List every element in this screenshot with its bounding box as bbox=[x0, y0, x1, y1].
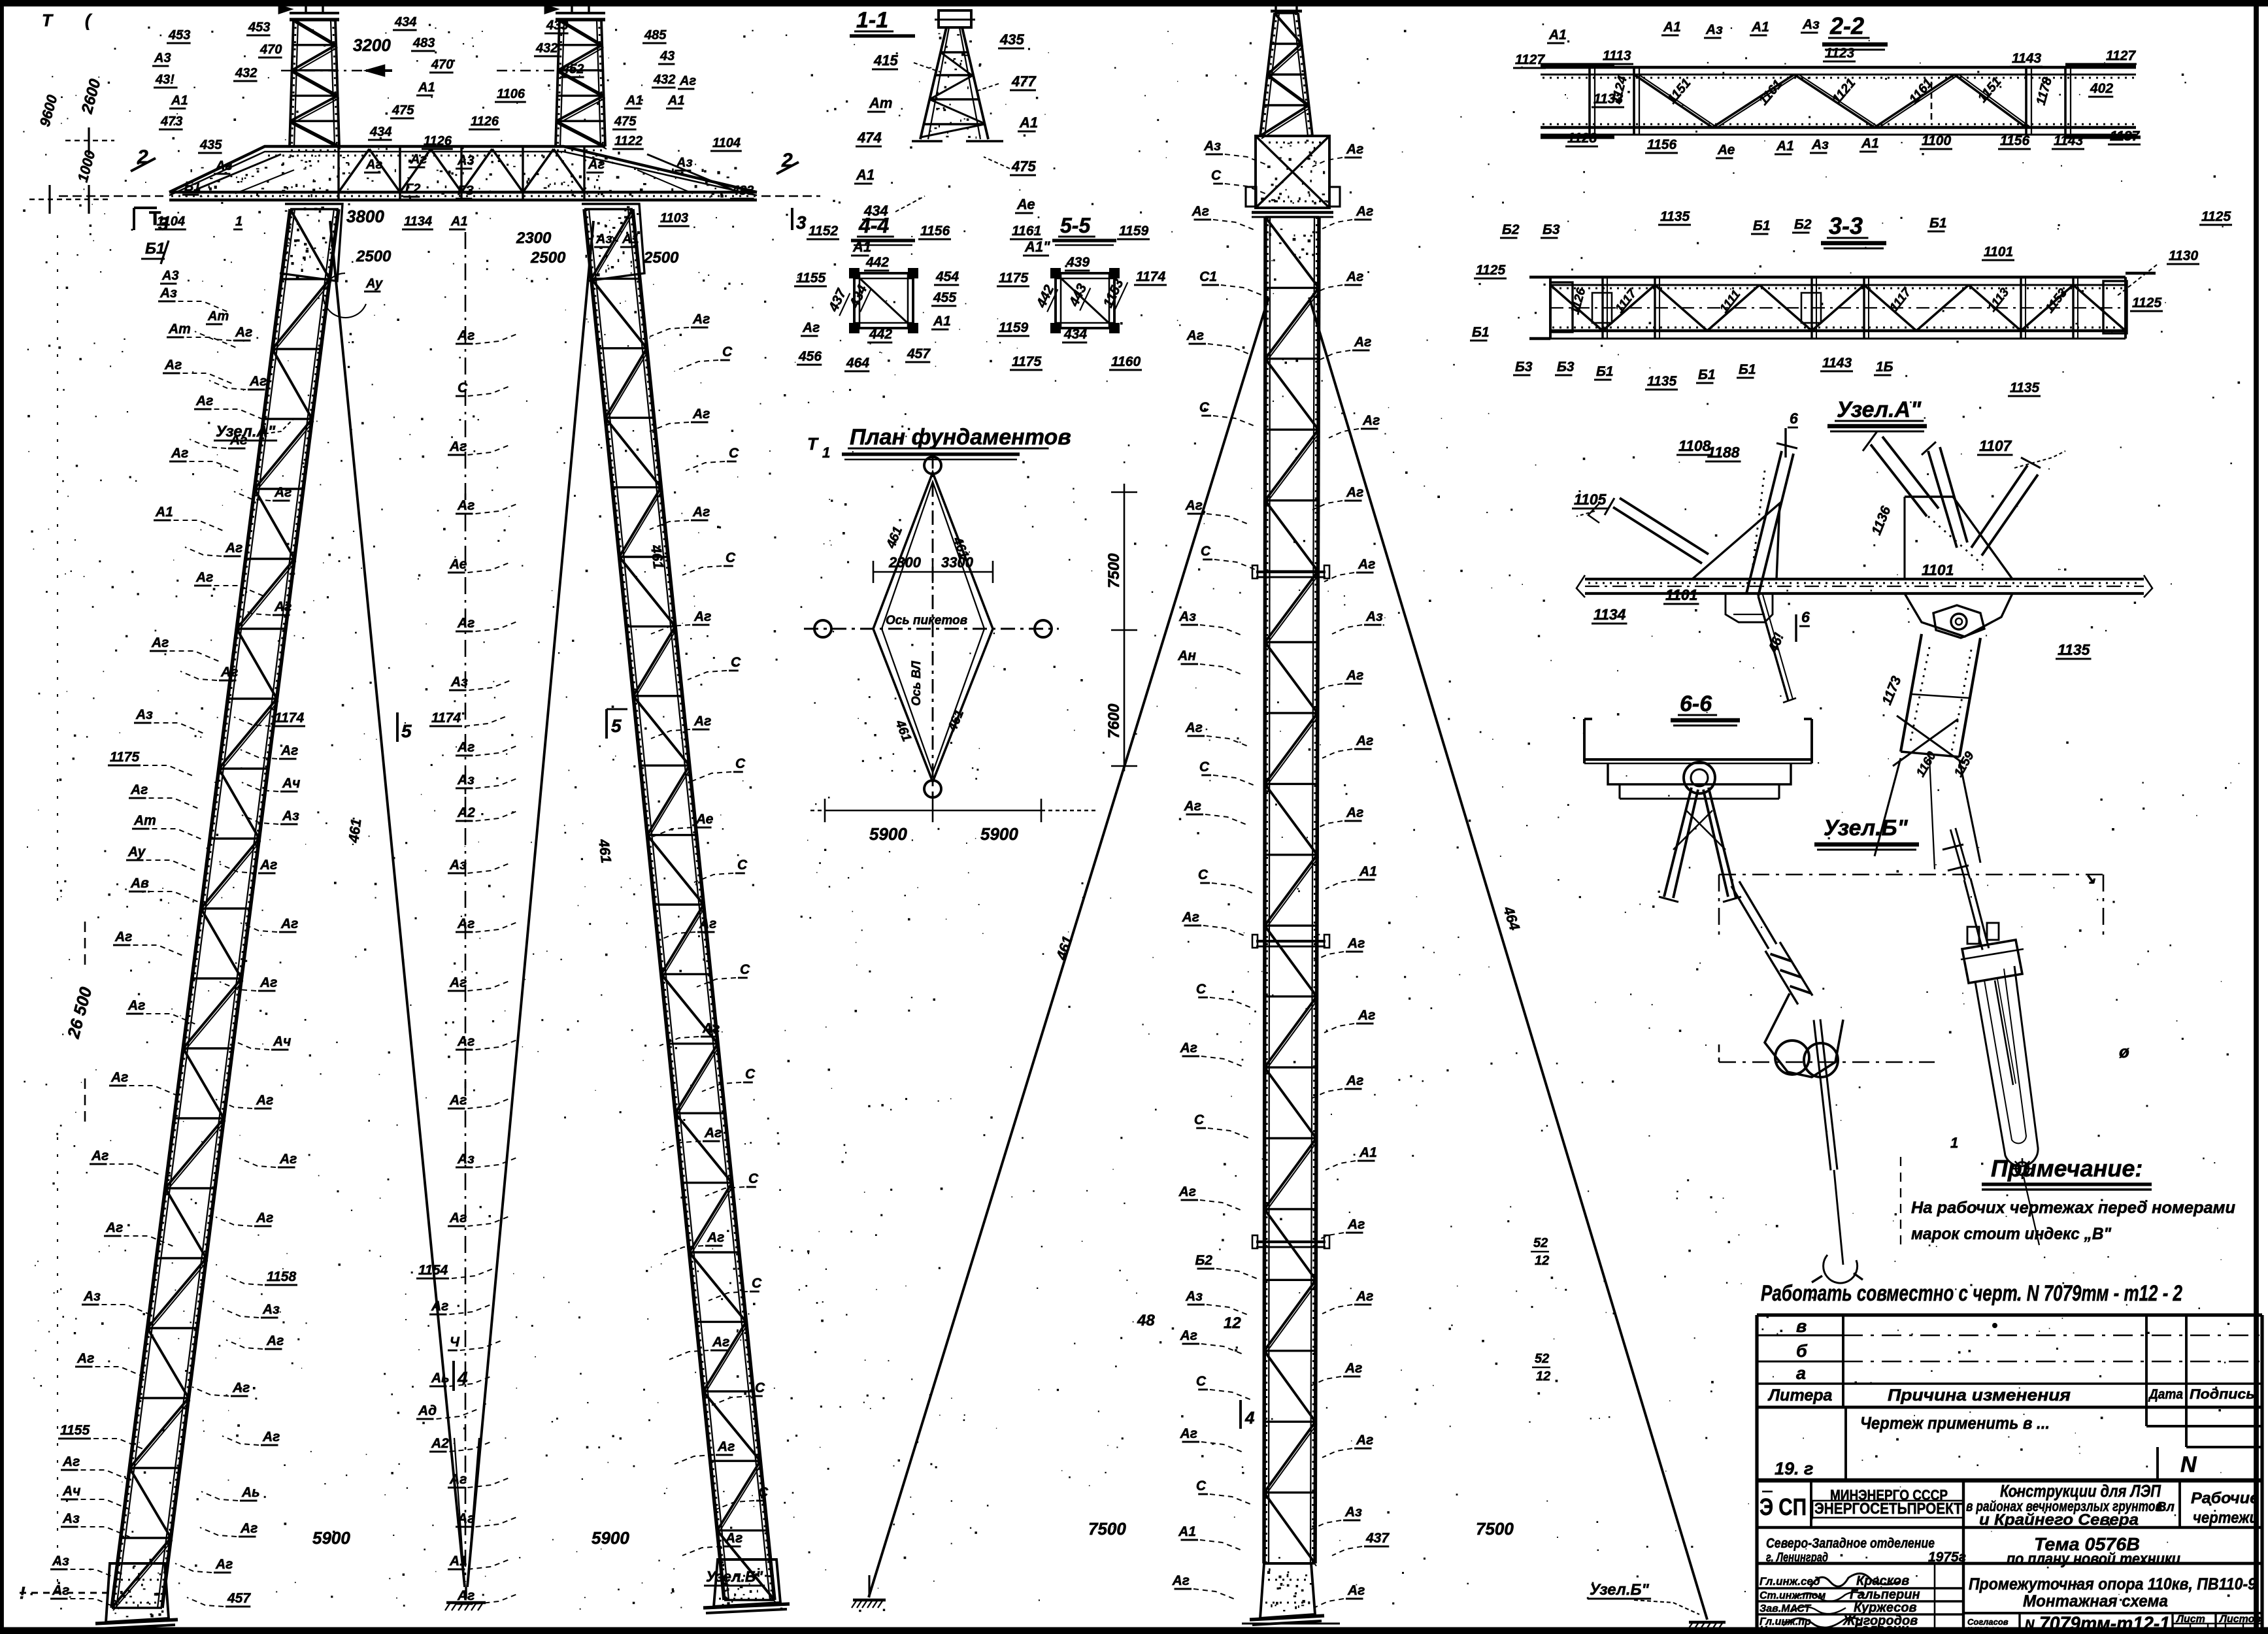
svg-text:7500: 7500 bbox=[1105, 553, 1123, 588]
svg-text:1174: 1174 bbox=[1136, 269, 1165, 284]
svg-text:Аг: Аг bbox=[1180, 1328, 1197, 1343]
svg-text:Примечание:: Примечание: bbox=[1991, 1155, 2143, 1182]
svg-text:Аг: Аг bbox=[1356, 1433, 1373, 1448]
svg-text:1108: 1108 bbox=[1678, 437, 1711, 454]
svg-text:План фундаментов: План фундаментов bbox=[850, 425, 1071, 450]
svg-text:Аг: Аг bbox=[702, 1021, 720, 1036]
svg-text:Аг: Аг bbox=[114, 929, 132, 944]
svg-text:Аг: Аг bbox=[259, 858, 277, 873]
svg-text:1103: 1103 bbox=[660, 211, 688, 225]
svg-text:б: б bbox=[1796, 1341, 1808, 1361]
svg-text:475: 475 bbox=[1011, 158, 1036, 175]
svg-text:1101: 1101 bbox=[1922, 561, 1954, 578]
svg-text:435: 435 bbox=[199, 138, 222, 152]
svg-text:1104: 1104 bbox=[712, 136, 741, 150]
svg-text:43: 43 bbox=[659, 49, 675, 63]
svg-text:7500: 7500 bbox=[1088, 1519, 1126, 1539]
svg-text:Аь: Аь bbox=[431, 1371, 450, 1386]
svg-text:434: 434 bbox=[1063, 327, 1087, 342]
svg-text:Аг: Аг bbox=[693, 609, 711, 624]
svg-text:Ось ВЛ: Ось ВЛ bbox=[910, 660, 924, 706]
svg-text:Аз: Аз bbox=[595, 232, 612, 246]
svg-text:Б1: Б1 bbox=[184, 180, 201, 194]
svg-text:Куржесов: Куржесов bbox=[1854, 1601, 1917, 1615]
svg-text:Аг: Аг bbox=[274, 599, 292, 614]
svg-text:Аг: Аг bbox=[274, 485, 292, 500]
svg-text:Аг: Аг bbox=[220, 665, 238, 680]
svg-text:А1: А1 bbox=[1776, 139, 1794, 154]
svg-text:Зав.МАСТ: Зав.МАСТ bbox=[1759, 1603, 1811, 1614]
svg-text:1143: 1143 bbox=[2012, 51, 2041, 66]
svg-text:1100: 1100 bbox=[1922, 133, 1951, 148]
svg-text:!: ! bbox=[20, 1583, 25, 1603]
svg-text:С: С bbox=[1196, 982, 1207, 997]
svg-text:432: 432 bbox=[535, 41, 558, 56]
svg-text:Ат: Ат bbox=[207, 309, 229, 324]
svg-text:Ае: Ае bbox=[1016, 196, 1035, 212]
svg-text:Аг: Аг bbox=[1346, 269, 1363, 284]
svg-text:1127: 1127 bbox=[1515, 52, 1545, 67]
svg-text:Аг: Аг bbox=[280, 916, 298, 931]
svg-text:А1: А1 bbox=[1751, 20, 1769, 35]
svg-text:Аг: Аг bbox=[62, 1454, 80, 1469]
svg-text:На рабочих чертежах перед: На рабочих чертежах перед номерами bbox=[1911, 1199, 2235, 1217]
svg-text:А1": А1" bbox=[1024, 239, 1050, 255]
svg-text:1106: 1106 bbox=[497, 87, 525, 101]
svg-text:5900: 5900 bbox=[869, 824, 907, 844]
svg-text:5900: 5900 bbox=[312, 1528, 350, 1548]
svg-text:Аг: Аг bbox=[1358, 1008, 1375, 1023]
svg-text:А1: А1 bbox=[667, 93, 685, 108]
svg-text:С: С bbox=[748, 1171, 759, 1186]
svg-text:5-5: 5-5 bbox=[1060, 214, 1091, 237]
svg-text:Аг: Аг bbox=[279, 1152, 297, 1167]
svg-text:Красков: Красков bbox=[1856, 1574, 1909, 1588]
svg-text:А3: А3 bbox=[161, 269, 179, 283]
svg-text:С: С bbox=[1196, 1478, 1207, 1493]
svg-text:1130: 1130 bbox=[2169, 248, 2198, 263]
svg-text:1160: 1160 bbox=[1111, 354, 1141, 369]
svg-text:Узел.А": Узел.А" bbox=[1837, 397, 1922, 422]
svg-text:Ач: Ач bbox=[273, 1034, 291, 1049]
svg-text:Аз: Аз bbox=[449, 858, 467, 873]
svg-text:Гальперин: Гальперин bbox=[1850, 1588, 1920, 1602]
svg-text:52: 52 bbox=[1533, 1236, 1548, 1250]
svg-text:Аг: Аг bbox=[171, 446, 188, 461]
svg-text:1127: 1127 bbox=[2106, 48, 2136, 63]
svg-text:1122: 1122 bbox=[614, 134, 642, 148]
svg-text:Ач: Ач bbox=[282, 776, 300, 791]
svg-text:Узел.Б": Узел.Б" bbox=[706, 1568, 763, 1585]
svg-text:461: 461 bbox=[345, 818, 364, 844]
svg-text:Аз: Аз bbox=[262, 1302, 280, 1317]
svg-text:1126: 1126 bbox=[424, 134, 452, 148]
svg-text:Аг: Аг bbox=[457, 498, 475, 513]
svg-text:Н.контр: Н.контр bbox=[1759, 1625, 1804, 1634]
svg-text:Аг: Аг bbox=[259, 975, 277, 990]
svg-text:Аг: Аг bbox=[1346, 485, 1363, 500]
svg-text:Аг: Аг bbox=[235, 325, 252, 340]
svg-text:Аг: Аг bbox=[1344, 1361, 1362, 1376]
svg-text:12: 12 bbox=[1535, 1254, 1549, 1268]
svg-text:5900: 5900 bbox=[592, 1528, 629, 1548]
svg-text:402: 402 bbox=[2090, 81, 2113, 96]
svg-text:Б1: Б1 bbox=[145, 240, 165, 258]
svg-text:Б1: Б1 bbox=[1739, 362, 1756, 377]
svg-text:457: 457 bbox=[227, 1591, 251, 1606]
svg-text:1155: 1155 bbox=[796, 271, 825, 286]
svg-text:Б3: Б3 bbox=[1557, 359, 1575, 375]
svg-text:1-1: 1-1 bbox=[856, 8, 888, 33]
svg-text:432: 432 bbox=[653, 73, 675, 87]
svg-text:12: 12 bbox=[1536, 1369, 1550, 1384]
svg-text:А1: А1 bbox=[418, 80, 435, 95]
svg-text:3-3: 3-3 bbox=[1829, 212, 1863, 239]
svg-text:N: N bbox=[2180, 1452, 2197, 1477]
svg-text:С: С bbox=[755, 1380, 765, 1395]
svg-text:Аг: Аг bbox=[1347, 1217, 1365, 1232]
svg-text:470: 470 bbox=[259, 42, 282, 57]
svg-text:А1: А1 bbox=[449, 1554, 467, 1569]
svg-text:Аг: Аг bbox=[704, 1125, 722, 1141]
svg-text:А3: А3 bbox=[154, 51, 171, 65]
svg-text:Аз: Аз bbox=[159, 286, 177, 301]
svg-text:Аг: Аг bbox=[105, 1220, 123, 1235]
svg-text:А3: А3 bbox=[457, 154, 475, 168]
svg-text:1156: 1156 bbox=[1647, 137, 1676, 152]
svg-text:415: 415 bbox=[873, 52, 898, 69]
svg-text:Аг: Аг bbox=[1346, 805, 1363, 820]
svg-text:Аз: Аз bbox=[1185, 1289, 1203, 1304]
svg-text:Б1: Б1 bbox=[1596, 364, 1614, 379]
svg-text:Аз: Аз bbox=[1802, 17, 1820, 32]
svg-text:473: 473 bbox=[160, 114, 182, 129]
svg-text:Ав: Ав bbox=[130, 876, 149, 891]
svg-text:Аг: Аг bbox=[457, 616, 475, 631]
svg-text:483: 483 bbox=[412, 36, 435, 50]
svg-text:А1: А1 bbox=[625, 93, 643, 108]
svg-text:А1: А1 bbox=[856, 167, 875, 183]
svg-text:Б1: Б1 bbox=[1929, 216, 1947, 231]
svg-text:1143: 1143 bbox=[1822, 356, 1852, 371]
svg-text:Аг: Аг bbox=[280, 743, 298, 758]
svg-text:Узел.Б": Узел.Б" bbox=[1824, 816, 1909, 841]
svg-text:Аз: Аз bbox=[62, 1511, 80, 1526]
svg-text:3200: 3200 bbox=[353, 35, 391, 55]
svg-text:Аз: Аз bbox=[1178, 609, 1196, 624]
svg-text:Аг: Аг bbox=[449, 439, 467, 454]
svg-text:4: 4 bbox=[1244, 1408, 1255, 1427]
svg-text:1175: 1175 bbox=[110, 750, 139, 765]
svg-text:1188: 1188 bbox=[1707, 444, 1740, 461]
svg-text:А1: А1 bbox=[155, 505, 173, 520]
svg-text:461: 461 bbox=[595, 838, 614, 864]
svg-text:1156: 1156 bbox=[920, 224, 950, 239]
svg-text:А1: А1 bbox=[171, 93, 188, 108]
svg-text:Аг: Аг bbox=[1358, 557, 1375, 572]
svg-text:Аг: Аг bbox=[225, 541, 242, 556]
svg-text:а: а bbox=[1796, 1363, 1806, 1383]
svg-text:Аг: Аг bbox=[240, 1521, 258, 1536]
svg-text:Аг: Аг bbox=[1346, 142, 1363, 157]
svg-text:457: 457 bbox=[907, 346, 931, 361]
svg-text:С: С bbox=[1201, 544, 1211, 559]
svg-text:Аг: Аг bbox=[692, 505, 710, 520]
svg-text:1135: 1135 bbox=[1660, 209, 1690, 224]
svg-text:461: 461 bbox=[648, 544, 667, 570]
svg-text:1Б: 1Б bbox=[1876, 359, 1893, 375]
svg-text:3: 3 bbox=[796, 212, 807, 233]
svg-text:1155: 1155 bbox=[60, 1423, 90, 1438]
svg-text:Аг: Аг bbox=[707, 1230, 724, 1245]
svg-text:Монтажная схема: Монтажная схема bbox=[2023, 1592, 2168, 1610]
svg-text:7079тм-т12-1: 7079тм-т12-1 bbox=[2039, 1613, 2170, 1634]
svg-text:433: 433 bbox=[546, 18, 568, 33]
svg-text:Аг: Аг bbox=[449, 1472, 467, 1487]
svg-text:6: 6 bbox=[1801, 609, 1810, 625]
svg-text:1975г: 1975г bbox=[1928, 1550, 1966, 1565]
svg-text:Ач: Ач bbox=[62, 1484, 80, 1499]
svg-text:4-4: 4-4 bbox=[858, 214, 889, 237]
svg-text:ГЗ: ГЗ bbox=[458, 184, 474, 198]
svg-text:Аг: Аг bbox=[449, 1093, 467, 1108]
svg-text:48: 48 bbox=[1137, 1312, 1155, 1329]
svg-text:474: 474 bbox=[857, 129, 882, 146]
svg-text:С: С bbox=[735, 756, 746, 771]
svg-text:Аг: Аг bbox=[249, 374, 267, 389]
svg-text:Б1: Б1 bbox=[1753, 218, 1771, 233]
svg-text:Аг: Аг bbox=[457, 328, 475, 343]
svg-text:Аг: Аг bbox=[215, 159, 232, 173]
svg-text:Аз: Аз bbox=[282, 809, 299, 824]
svg-text:432: 432 bbox=[235, 66, 257, 80]
svg-text:Аг: Аг bbox=[127, 998, 145, 1013]
svg-text:и кол-во: и кол-во bbox=[1967, 1624, 2000, 1633]
svg-text:1158: 1158 bbox=[267, 1269, 296, 1284]
svg-text:Ат: Ат bbox=[168, 322, 191, 337]
svg-text:Аг: Аг bbox=[692, 312, 710, 327]
svg-text:2300: 2300 bbox=[888, 554, 922, 571]
svg-text:1126: 1126 bbox=[471, 114, 499, 129]
svg-text:Аг: Аг bbox=[457, 740, 475, 755]
svg-text:Чертеж применить в ...: Чертеж применить в ... bbox=[1860, 1413, 2050, 1433]
svg-text:С: С bbox=[1211, 168, 1222, 183]
svg-text:1135: 1135 bbox=[2058, 641, 2091, 658]
svg-text:442: 442 bbox=[869, 327, 892, 342]
svg-text:Т: Т bbox=[807, 434, 819, 454]
svg-text:Головин: Головин bbox=[1854, 1622, 1909, 1634]
svg-text:1128: 1128 bbox=[1567, 131, 1597, 146]
svg-text:Аг: Аг bbox=[699, 916, 716, 931]
svg-text:С: С bbox=[1194, 1112, 1205, 1127]
svg-text:С: С bbox=[1198, 867, 1209, 882]
svg-text:470: 470 bbox=[431, 58, 453, 72]
svg-text:1113: 1113 bbox=[1603, 48, 1631, 63]
svg-text:Аг: Аг bbox=[712, 1335, 729, 1350]
svg-text:Аг: Аг bbox=[457, 916, 475, 931]
svg-text:Аг: Аг bbox=[725, 1531, 742, 1546]
svg-text:Аг: Аг bbox=[91, 1148, 108, 1163]
svg-text:N: N bbox=[2025, 1618, 2035, 1632]
svg-text:А1: А1 bbox=[622, 232, 639, 246]
svg-text:Аг: Аг bbox=[1347, 936, 1365, 951]
svg-text:А1: А1 bbox=[1861, 136, 1879, 151]
svg-text:Аз: Аз bbox=[135, 707, 153, 722]
svg-text:С: С bbox=[731, 655, 741, 670]
svg-text:1159: 1159 bbox=[1119, 224, 1148, 239]
svg-text:453: 453 bbox=[168, 28, 190, 42]
svg-text:Аг: Аг bbox=[151, 635, 169, 650]
svg-text:6: 6 bbox=[1790, 410, 1798, 427]
svg-text:Г2: Г2 bbox=[405, 182, 420, 196]
svg-text:Б1: Б1 bbox=[1472, 325, 1490, 340]
svg-text:5900: 5900 bbox=[980, 824, 1018, 844]
svg-text:52: 52 bbox=[1535, 1352, 1549, 1366]
svg-text:4: 4 bbox=[457, 1368, 468, 1388]
svg-text:Аз: Аз bbox=[450, 675, 468, 690]
svg-text:475: 475 bbox=[614, 114, 637, 129]
svg-text:1187: 1187 bbox=[2110, 129, 2140, 144]
svg-text:Аг: Аг bbox=[1346, 668, 1363, 683]
svg-text:453: 453 bbox=[248, 20, 270, 35]
svg-text:Ад: Ад bbox=[418, 1403, 437, 1418]
svg-text:Аг: Аг bbox=[164, 358, 182, 373]
svg-text:2500: 2500 bbox=[356, 248, 392, 265]
svg-text:Аг: Аг bbox=[1186, 328, 1204, 343]
svg-text:Аг: Аг bbox=[802, 320, 820, 335]
svg-text:Аг: Аг bbox=[1356, 204, 1373, 219]
svg-text:Аг: Аг bbox=[457, 1588, 475, 1603]
svg-text:1174: 1174 bbox=[275, 710, 304, 725]
svg-text:Аг: Аг bbox=[1185, 720, 1203, 735]
svg-text:г. Ленинград: г. Ленинград bbox=[1766, 1551, 1828, 1565]
svg-text:А1: А1 bbox=[1019, 114, 1038, 131]
svg-text:Аз: Аз bbox=[1203, 139, 1221, 154]
svg-text:483: 483 bbox=[731, 184, 754, 198]
svg-text:19. г: 19. г bbox=[1775, 1459, 1813, 1478]
svg-text:Дата: Дата bbox=[2148, 1387, 2183, 1402]
svg-text:Узел.А": Узел.А" bbox=[216, 423, 276, 441]
svg-text:С: С bbox=[737, 858, 748, 873]
svg-text:Рабочие: Рабочие bbox=[2191, 1490, 2259, 1507]
svg-text:1174: 1174 bbox=[431, 710, 461, 725]
svg-text:Аг: Аг bbox=[130, 782, 148, 797]
svg-text:1175: 1175 bbox=[999, 271, 1028, 286]
svg-text:1143: 1143 bbox=[2054, 133, 2083, 148]
svg-text:437: 437 bbox=[1365, 1531, 1390, 1546]
svg-text:456: 456 bbox=[798, 349, 822, 364]
svg-text:1175: 1175 bbox=[1012, 354, 1041, 369]
svg-text:Ае: Ае bbox=[1717, 142, 1735, 158]
svg-text:С: С bbox=[745, 1067, 756, 1082]
svg-text:С: С bbox=[758, 1485, 769, 1500]
svg-text:1123: 1123 bbox=[1825, 46, 1854, 61]
svg-text:Аз: Аз bbox=[1344, 1505, 1362, 1520]
svg-text:Аз: Аз bbox=[83, 1289, 101, 1304]
svg-text:А1: А1 bbox=[1359, 1145, 1377, 1160]
svg-text:Аг: Аг bbox=[262, 1429, 280, 1444]
svg-text:Ау: Ау bbox=[365, 276, 383, 291]
svg-text:Аз: Аз bbox=[1365, 609, 1383, 624]
svg-text:Э СП: Э СП bbox=[1759, 1493, 1807, 1520]
svg-text:Ат: Ат bbox=[133, 813, 156, 828]
svg-text:1: 1 bbox=[235, 214, 242, 229]
svg-text:Аг: Аг bbox=[679, 74, 696, 88]
svg-text:Аг: Аг bbox=[1354, 335, 1371, 350]
svg-text:Северо-Западное отделение: Северо-Западное отделение bbox=[1766, 1536, 1935, 1551]
svg-text:Аг: Аг bbox=[76, 1351, 94, 1366]
svg-text:С: С bbox=[1199, 759, 1210, 775]
svg-text:Ч: Ч bbox=[450, 1335, 460, 1350]
svg-text:434: 434 bbox=[369, 125, 392, 139]
svg-text:Аг: Аг bbox=[457, 1511, 475, 1526]
svg-text:455: 455 bbox=[933, 290, 956, 305]
svg-text:7500: 7500 bbox=[1476, 1519, 1514, 1539]
svg-text:Аг: Аг bbox=[1356, 1289, 1373, 1304]
svg-text:1107: 1107 bbox=[1979, 437, 2012, 454]
svg-text:Аз: Аз bbox=[457, 1152, 475, 1167]
svg-text:2-2: 2-2 bbox=[1829, 12, 1864, 39]
svg-text:Аг: Аг bbox=[1362, 413, 1380, 428]
svg-text:Аг: Аг bbox=[449, 975, 467, 990]
svg-text:7600: 7600 bbox=[1105, 703, 1123, 739]
svg-text:С: С bbox=[729, 446, 739, 461]
svg-text:1: 1 bbox=[1950, 1135, 1958, 1151]
svg-text:Промежуточная опора 110кв, ПВ: Промежуточная опора 110кв, ПВ110-9 bbox=[1969, 1575, 2256, 1593]
svg-text:А1: А1 bbox=[450, 214, 468, 229]
svg-text:А1: А1 bbox=[933, 314, 951, 329]
svg-text:Аг: Аг bbox=[717, 1439, 735, 1454]
svg-text:1: 1 bbox=[822, 444, 830, 461]
svg-text:2500: 2500 bbox=[530, 249, 566, 267]
svg-text:по плану новой техники: по плану новой техники bbox=[2007, 1550, 2180, 1568]
svg-text:Аз: Аз bbox=[676, 156, 693, 170]
svg-text:Аг: Аг bbox=[1172, 1573, 1190, 1588]
svg-text:Аз: Аз bbox=[457, 773, 475, 788]
svg-text:Ан: Ан bbox=[1177, 648, 1196, 663]
svg-text:Аг: Аг bbox=[692, 407, 710, 422]
svg-text:Аг: Аг bbox=[410, 152, 427, 167]
svg-text:3: 3 bbox=[158, 214, 169, 234]
svg-text:1152: 1152 bbox=[809, 224, 838, 239]
svg-text:Аг: Аг bbox=[215, 1557, 233, 1572]
svg-text:марок стоит индекс „В": марок стоит индекс „В" bbox=[1911, 1225, 2112, 1243]
svg-text:Подпись: Подпись bbox=[2190, 1387, 2255, 1402]
svg-text:Аг: Аг bbox=[1180, 1041, 1197, 1056]
svg-text:↘: ↘ bbox=[2084, 871, 2095, 887]
svg-text:452: 452 bbox=[561, 62, 584, 76]
svg-text:Аг: Аг bbox=[256, 1210, 273, 1225]
svg-text:Аг: Аг bbox=[1182, 910, 1199, 925]
svg-text:442: 442 bbox=[865, 255, 889, 270]
svg-text:43!: 43! bbox=[155, 73, 175, 87]
svg-text:Аь: Аь bbox=[241, 1485, 260, 1500]
svg-text:6-6: 6-6 bbox=[1680, 692, 1712, 716]
svg-text:1125: 1125 bbox=[1476, 263, 1505, 278]
svg-text:1134: 1134 bbox=[404, 214, 432, 229]
svg-text:Аг: Аг bbox=[266, 1333, 284, 1348]
svg-text:А1: А1 bbox=[1178, 1524, 1196, 1539]
svg-text:А2: А2 bbox=[457, 805, 475, 820]
svg-text:Ае: Ае bbox=[449, 557, 467, 572]
svg-text:Аг: Аг bbox=[1184, 799, 1201, 814]
svg-text:477: 477 bbox=[1011, 73, 1037, 90]
svg-text:С: С bbox=[740, 962, 750, 977]
svg-text:Аг: Аг bbox=[693, 714, 711, 729]
svg-text:С: С bbox=[722, 344, 733, 359]
svg-text:Аг: Аг bbox=[365, 158, 382, 172]
svg-text:Аз: Аз bbox=[1705, 22, 1723, 37]
